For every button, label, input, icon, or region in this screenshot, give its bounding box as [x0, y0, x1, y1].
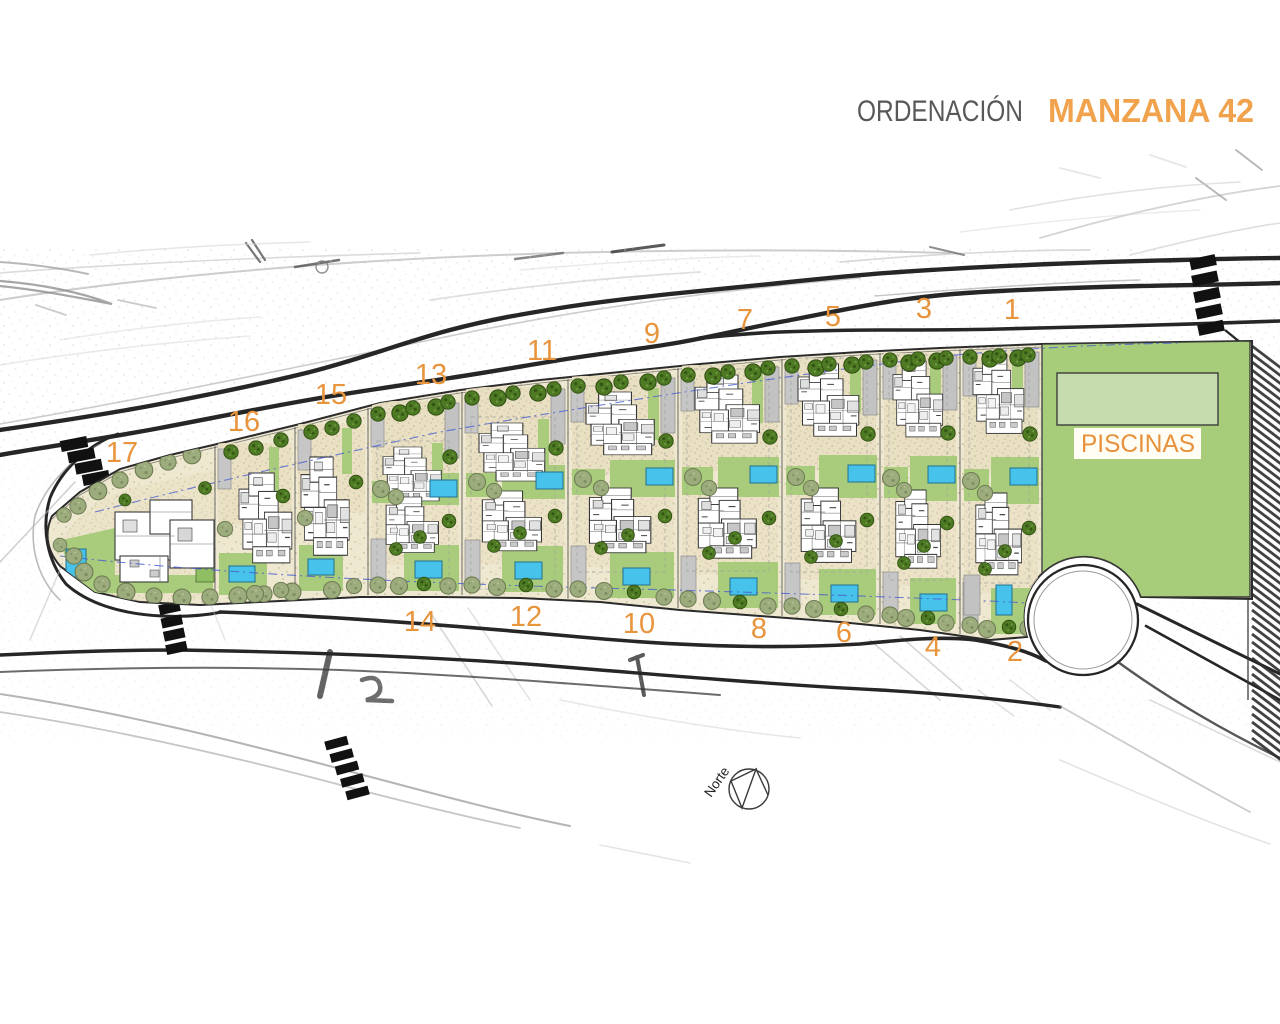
- svg-text:15: 15: [315, 379, 347, 411]
- svg-text:3: 3: [916, 293, 932, 325]
- svg-text:MANZANA 42: MANZANA 42: [1048, 92, 1254, 129]
- svg-text:6: 6: [836, 617, 852, 649]
- svg-text:14: 14: [404, 606, 436, 638]
- svg-text:10: 10: [623, 608, 655, 640]
- svg-text:9: 9: [644, 318, 660, 350]
- svg-text:2: 2: [1007, 636, 1023, 668]
- svg-text:8: 8: [751, 613, 767, 645]
- svg-text:16: 16: [228, 406, 260, 438]
- svg-text:17: 17: [106, 437, 138, 469]
- svg-text:7: 7: [737, 304, 753, 336]
- svg-text:13: 13: [415, 359, 447, 391]
- svg-text:PISCINAS: PISCINAS: [1081, 430, 1195, 458]
- svg-text:ORDENACIÓN: ORDENACIÓN: [857, 95, 1023, 128]
- svg-text:12: 12: [510, 601, 542, 633]
- svg-text:4: 4: [925, 631, 941, 663]
- svg-text:11: 11: [527, 335, 557, 367]
- svg-text:5: 5: [825, 301, 841, 333]
- svg-text:1: 1: [1004, 294, 1020, 326]
- svg-text:Norte: Norte: [701, 764, 732, 800]
